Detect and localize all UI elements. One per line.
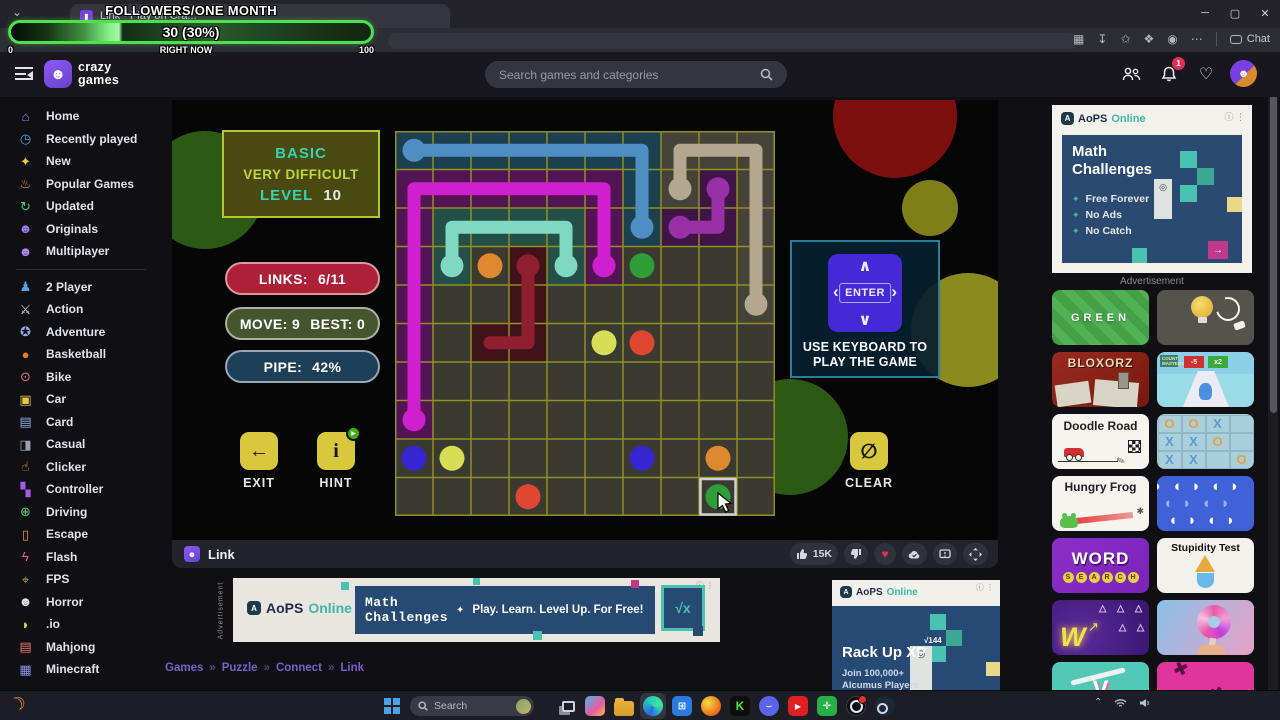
refresh-icon: ↻ — [17, 200, 34, 213]
advertisement-caption: Advertisement — [1052, 276, 1252, 287]
banner-ad[interactable]: ⓘ ⋮ A AoPS Online Math Challenges ✦ Play… — [233, 578, 720, 642]
sidebar-ad-art: Math Challenges ✦Free Forever ✦No Ads ✦N… — [1062, 135, 1242, 263]
sidebar-item-adventure[interactable]: ✪Adventure — [0, 321, 162, 344]
home-icon: ⌂ — [17, 110, 34, 123]
thumb-count-runner-art: COUNT MASTERS — [1160, 355, 1178, 367]
decor-circle-olive-small — [902, 180, 958, 236]
square-ad-formula: √144 — [924, 636, 942, 645]
sidebar-item-new[interactable]: ✦New — [0, 150, 162, 173]
thumb-word-search-art: A — [1089, 572, 1100, 583]
sidebar-item-io[interactable]: ◗.io — [0, 613, 162, 636]
card-icon: ▤ — [17, 415, 34, 428]
arrow-right-icon: › — [891, 282, 897, 302]
taskbar-search[interactable]: Search — [410, 696, 534, 716]
wifi-icon[interactable] — [1114, 698, 1127, 708]
chat-label: Chat — [1247, 33, 1270, 45]
pipe-counter: PIPE:42% — [225, 350, 380, 383]
thumb-count-runner-art: -5 — [1184, 356, 1204, 368]
sidebar-item-popular-games[interactable]: ♨Popular Games — [0, 173, 162, 196]
sidebar-item-label: Home — [46, 109, 79, 123]
ad-pixel-decor — [693, 626, 703, 636]
taskbar-slot-task-view — [553, 693, 579, 719]
search-placeholder: Search games and categories — [499, 68, 760, 82]
sidebar-item-label: Bike — [46, 370, 71, 384]
avatar[interactable]: ☻ — [1230, 60, 1257, 87]
followers-progress-value: 30 (30%) — [163, 24, 220, 40]
sidebar-item-label: FPS — [46, 572, 69, 586]
thumb-count-runner-art — [1199, 383, 1212, 400]
followers-progress-bar: 30 (30%) — [8, 20, 374, 44]
sidebar-item-label: Controller — [46, 482, 103, 496]
sidebar-item-clicker[interactable]: ☝Clicker — [0, 456, 162, 479]
thumb-donut-twist-art — [1197, 645, 1225, 655]
fullscreen-icon — [969, 548, 982, 561]
aops-logo-icon: A — [247, 601, 261, 615]
crazygames-logo[interactable]: ☻ — [44, 60, 72, 88]
sidebar-item-casual[interactable]: ◨Casual — [0, 433, 162, 456]
taskbar-slot-firefox — [698, 693, 724, 719]
thumb-bloxorz-art — [1118, 372, 1129, 389]
sidebar-item-label: New — [46, 154, 71, 168]
breadcrumb-separator: » — [264, 662, 270, 674]
breadcrumb: Games»Puzzle»Connect»Link — [165, 662, 364, 674]
thumb-hungry-frog-art: Hungry Frog — [1052, 480, 1149, 494]
sidebar-item-basketball[interactable]: ●Basketball — [0, 343, 162, 366]
sidebar-item-label: Escape — [46, 527, 88, 541]
taskbar-search-placeholder: Search — [434, 700, 510, 712]
level-label: LEVEL — [260, 187, 313, 204]
thumb-bloxorz[interactable]: BLOXORZ — [1052, 352, 1149, 407]
thumbs-down-icon — [850, 548, 862, 560]
search-icon — [418, 701, 428, 711]
breadcrumb-games[interactable]: Games — [165, 662, 203, 674]
thumb-word-search-art: S — [1063, 572, 1074, 583]
thumb-tic-tac-toe-art: O — [1206, 433, 1230, 451]
sidebar-item-label: Recently played — [46, 132, 137, 146]
banner-heading-1: Math — [365, 595, 448, 610]
thumbs-up-icon — [796, 548, 808, 560]
game-title: Link — [208, 547, 235, 562]
sidebar-item-minecraft[interactable]: ▦Minecraft — [0, 658, 162, 681]
taskbar-apps: ⊞K⌣▶✛ — [556, 696, 895, 716]
sidebar-item-escape[interactable]: ▯Escape — [0, 523, 162, 546]
more-options-icon[interactable]: ⋯ — [1191, 32, 1203, 46]
sidebar-item-flash[interactable]: ϟFlash — [0, 546, 162, 569]
thumb-bulb-plug-art — [1198, 317, 1207, 323]
sidebar-item-label: Popular Games — [46, 177, 134, 191]
breadcrumb-link[interactable]: Link — [340, 662, 364, 674]
favorites-button[interactable]: ♡ — [1193, 61, 1219, 87]
square-ad-art: √144 ◎ Rack Up XP Join 100,000+ Alcumus … — [832, 606, 1000, 690]
back-arrow-icon: ← — [249, 440, 269, 463]
ghost-icon: ☻ — [17, 222, 34, 235]
keyboard-hint-panel: ∧ ∨ ‹ › ENTER USE KEYBOARD TO PLAY THE G… — [790, 240, 940, 378]
move-counter: MOVE: 9BEST: 0 — [225, 307, 380, 340]
thumb-doodle-road-art — [1128, 440, 1141, 453]
sidebar-item-label: Basketball — [46, 347, 106, 361]
thumb-doodle-road[interactable]: Doodle Road✎ — [1052, 414, 1149, 469]
heart-icon: ♡ — [1199, 64, 1213, 84]
thumb-hungry-frog-art — [1060, 516, 1078, 528]
taskbar-slot-discord: ⌣ — [756, 693, 782, 719]
sidebar-item-mahjong[interactable]: ▤Mahjong — [0, 636, 162, 659]
chat-button[interactable]: Chat — [1230, 33, 1270, 45]
clock-icon: ◷ — [17, 132, 34, 145]
arrow-down-icon: ∨ — [859, 310, 872, 330]
taskbar-slot-sharex: ✛ — [814, 693, 840, 719]
thumb-stupidity-test-art — [1195, 555, 1215, 572]
sidebar-item-action[interactable]: ⚔Action — [0, 298, 162, 321]
fullscreen-button[interactable] — [963, 543, 988, 565]
sidebar-item-car[interactable]: ▣Car — [0, 388, 162, 411]
taskbar-slot-kick: K — [727, 693, 753, 719]
sidebar-item-label: Updated — [46, 199, 94, 213]
thumb-blue-shapes[interactable]: ◗ ◖ ◗ ◖ ◗◖ ◗ ◖ ◗◗ ◖ ◗ ◖ ◗ — [1157, 476, 1254, 531]
sidebar-item-home[interactable]: ⌂Home — [0, 105, 162, 128]
sidebar-item-label: .io — [46, 617, 60, 631]
square-ad[interactable]: ⓘ ⋮ A AoPS Online √144 ◎ Rack Up XP Join… — [832, 580, 1000, 690]
maximize-button[interactable]: ▢ — [1220, 0, 1250, 26]
steam-taskbar-icon[interactable] — [875, 696, 895, 716]
thumb-bulb-plug-art — [1191, 296, 1213, 318]
ad-pixel-decor — [533, 631, 542, 640]
sidebar-ad[interactable]: A AoPS Online ⓘ ⋮ Math Challenges ✦Free … — [1052, 105, 1252, 273]
banner-ad-band: Math Challenges ✦ Play. Learn. Level Up.… — [355, 586, 655, 634]
thumb-neon-wave-art: ▲ ▲ — [1117, 622, 1148, 634]
hidden-icons-chevron[interactable]: ⌃ — [1094, 697, 1102, 708]
ad-info-icon[interactable]: ⓘ ⋮ — [976, 582, 994, 593]
diamond-icon: ✦ — [456, 605, 464, 616]
ad-pixel-decor — [631, 580, 639, 588]
compass-icon: ✪ — [17, 325, 34, 338]
overlay-scale-min: 0 — [8, 45, 13, 55]
phone-link-taskbar-icon[interactable] — [585, 696, 605, 716]
minimize-button[interactable]: ─ — [1190, 0, 1220, 26]
hint-button[interactable]: i ▶ — [317, 432, 355, 470]
level-value: 10 — [323, 187, 342, 204]
thumb-tic-tac-toe-art: O — [1182, 415, 1206, 433]
sidebar-item-label: Mahjong — [46, 640, 95, 654]
overlay-scale-now: RIGHT NOW — [160, 45, 213, 55]
game-player-bar: ☻ Link 15K ♥ — [172, 540, 998, 568]
profile-icon[interactable]: ◉ — [1167, 32, 1177, 46]
edge-taskbar-icon[interactable] — [643, 696, 663, 716]
taskbar-slot-folder — [611, 693, 637, 719]
thumb-tic-tac-toe-art — [1230, 433, 1254, 451]
thumb-stupidity-test-art — [1197, 573, 1214, 588]
thumbnail-grid: GREENBLOXORZCOUNT MASTERS-5x2Doodle Road… — [1052, 290, 1254, 717]
sidebar-item-driving[interactable]: ⊕Driving — [0, 501, 162, 524]
thumb-doodle-road-art — [1058, 461, 1118, 462]
taskbar: ☽ Search ⊞K⌣▶✛ ⌃ — [0, 690, 1280, 720]
info-icon: i — [333, 440, 339, 463]
enter-key-label: ENTER — [839, 283, 891, 303]
sidebar-ad-heading-1: Math — [1072, 143, 1152, 161]
thumb-hungry-frog-art: ✱ — [1136, 506, 1144, 517]
sidebar-item-label: Flash — [46, 550, 77, 564]
tile-icon: ▤ — [17, 640, 34, 653]
crazygames-wordmark[interactable]: crazygames — [78, 61, 119, 87]
thumb-neon-wave-art: ↗ — [1088, 619, 1099, 635]
exit-button-label: EXIT — [229, 476, 289, 490]
banner-formula-box: √x — [661, 585, 705, 631]
thumb-count-runner[interactable]: COUNT MASTERS-5x2 — [1157, 352, 1254, 407]
sidebar-item-label: Originals — [46, 222, 98, 236]
thumb-tic-tac-toe-art: X — [1182, 451, 1206, 469]
friends-button[interactable] — [1118, 61, 1144, 87]
flame-icon: ♨ — [17, 177, 34, 190]
task-view-taskbar-icon[interactable] — [562, 701, 575, 712]
thumb-stupidity-test[interactable]: Stupidity Test — [1157, 538, 1254, 593]
thumb-tic-tac-toe-art: O — [1158, 415, 1182, 433]
sparkles-icon: ✦ — [17, 155, 34, 168]
sidebar-ad-pin: ◎ — [1154, 179, 1172, 219]
block-icon: ▦ — [17, 663, 34, 676]
thumb-green-art: GREEN — [1071, 312, 1130, 324]
thumb-blue-shapes-art: ◖ ◗ ◖ ◗ — [1163, 495, 1254, 512]
dislike-button[interactable] — [844, 543, 868, 565]
sidebar-item-label: Casual — [46, 437, 85, 451]
exit-button[interactable]: ← — [240, 432, 278, 470]
sidebar-item-label: Action — [46, 302, 83, 316]
favorite-button[interactable]: ♥ — [874, 543, 896, 565]
thumb-doodle-road-art: ✎ — [1115, 455, 1127, 468]
thumb-word-search-art: C — [1115, 572, 1126, 583]
taskbar-slot-steam — [872, 693, 898, 719]
ad-pixel-decor — [341, 582, 349, 590]
cloud-check-icon — [908, 549, 921, 560]
like-count: 15K — [813, 548, 832, 560]
sidebar-item-multiplayer[interactable]: ☻Multiplayer — [0, 240, 162, 263]
thumb-tic-tac-toe-art — [1230, 415, 1254, 433]
store-taskbar-icon[interactable]: ⊞ — [672, 696, 692, 716]
ghost-icon: ☻ — [17, 595, 34, 608]
thumb-blue-shapes-art: ◗ ◖ ◗ ◖ ◗ — [1157, 478, 1254, 495]
report-button[interactable] — [933, 543, 957, 565]
save-progress-button[interactable] — [902, 543, 927, 565]
thumb-bloxorz-art: BLOXORZ — [1052, 356, 1149, 370]
sidebar-item-label: Multiplayer — [46, 244, 109, 258]
clear-button[interactable]: ∅ — [850, 432, 888, 470]
thumb-word-search-art: R — [1102, 572, 1113, 583]
puzzle-grid[interactable] — [395, 131, 775, 516]
thumb-tic-tac-toe-art: X — [1206, 415, 1230, 433]
aops-logo-icon: A — [1061, 112, 1074, 125]
lightning-icon: ϟ — [17, 550, 34, 563]
thumb-tic-tac-toe-art — [1206, 451, 1230, 469]
banner-tagline: Play. Learn. Level Up. For Free! — [472, 604, 643, 616]
like-button[interactable]: 15K — [790, 543, 838, 565]
chat-bubble-icon — [1230, 35, 1242, 44]
report-icon — [939, 549, 951, 560]
search-highlight-image — [516, 699, 531, 714]
thumb-bulb-plug-art — [1233, 320, 1246, 330]
overlay-scale-max: 100 — [359, 45, 374, 55]
taskbar-slot-youtube: ▶ — [785, 693, 811, 719]
ad-arrow-tile: → — [1208, 241, 1228, 259]
door-icon: ▯ — [17, 528, 34, 541]
close-button[interactable]: ✕ — [1250, 0, 1280, 26]
taskbar-slot-store: ⊞ — [669, 693, 695, 719]
thumb-tic-tac-toe-art: O — [1230, 451, 1254, 469]
level-difficulty: VERY DIFFICULT — [243, 167, 359, 182]
sharex-taskbar-icon[interactable]: ✛ — [817, 696, 837, 716]
level-mode: BASIC — [275, 145, 327, 162]
heart-filled-icon: ♥ — [881, 547, 888, 561]
favorites-star-icon[interactable]: ✩ — [1120, 32, 1130, 46]
thumb-tic-tac-toe-art: X — [1158, 451, 1182, 469]
friends-icon — [1122, 67, 1141, 81]
sidebar-nav: ⌂Home◷Recently played✦New♨Popular Games↻… — [0, 97, 162, 690]
sidebar-item-recently-played[interactable]: ◷Recently played — [0, 128, 162, 151]
download-icon[interactable]: ↧ — [1097, 32, 1107, 46]
sidebar-item-originals[interactable]: ☻Originals — [0, 218, 162, 241]
ad-info-icon[interactable]: ⓘ ⋮ — [1224, 110, 1245, 123]
thumb-tic-tac-toe[interactable]: OOXXXOXXO — [1157, 414, 1254, 469]
crosshair-icon: ⌖ — [17, 573, 34, 586]
sidebar-item-label: Adventure — [46, 325, 105, 339]
keyboard-caption-line1: USE KEYBOARD TO — [803, 340, 927, 355]
keyboard-caption-line2: PLAY THE GAME — [803, 355, 927, 370]
thumb-doodle-road-art: Doodle Road — [1052, 419, 1149, 433]
thumb-neon-wave-art: ▲ ▲ ▲ — [1097, 603, 1146, 615]
breadcrumb-separator: » — [328, 662, 334, 674]
sidebar-item-label: 2 Player — [46, 280, 92, 294]
desktop: ⌄ ▮ Link · Play on Cra... ─ ▢ ✕ ▦ ↧ ✩ ❖ … — [0, 0, 1280, 720]
kick-taskbar-icon[interactable]: K — [730, 696, 750, 716]
thumb-tic-tac-toe-art: X — [1158, 433, 1182, 451]
thumb-neon-wave-art: W — [1060, 622, 1085, 653]
volume-icon[interactable] — [1139, 698, 1151, 708]
sidebar-item-label: Card — [46, 415, 73, 429]
thumb-word-search-art: H — [1128, 572, 1139, 583]
thumb-bloxorz-art — [1093, 379, 1139, 407]
stream-overlay: FOLLOWERS/ONE MONTH 30 (30%) 0 RIGHT NOW… — [8, 3, 374, 55]
basketball-icon: ● — [17, 348, 34, 361]
gamepad-icon: ▚ — [17, 483, 34, 496]
thumb-tic-tac-toe-art: X — [1182, 433, 1206, 451]
start-button[interactable] — [384, 698, 400, 714]
ad-pixel-decor — [473, 578, 480, 585]
thumb-count-runner-art: x2 — [1208, 356, 1228, 368]
car-icon: ▣ — [17, 393, 34, 406]
thumb-hungry-frog-art — [1076, 512, 1133, 524]
sidebar-item-label: Clicker — [46, 460, 86, 474]
bullet-icon: ✦ — [1072, 210, 1080, 221]
thumb-word-search[interactable]: WORDSEARCH — [1052, 538, 1149, 593]
breadcrumb-separator: » — [209, 662, 215, 674]
aops-logo-icon: A — [840, 586, 852, 598]
firefox-taskbar-icon[interactable] — [701, 696, 721, 716]
site-header: ☻ crazygames Search games and categories — [0, 52, 1280, 97]
sidebar-toggle-icon[interactable] — [15, 67, 33, 80]
hint-button-label: HINT — [306, 476, 366, 490]
firefox-corner-icon[interactable]: ☽ — [6, 692, 30, 718]
clear-button-label: CLEAR — [839, 476, 899, 490]
thumb-word-search-art: WORD — [1072, 549, 1130, 569]
toolbar-divider — [1216, 32, 1217, 46]
thumb-stupidity-test-art: Stupidity Test — [1157, 542, 1254, 554]
thumb-donut-twist[interactable] — [1157, 600, 1254, 655]
two-player-icon: ♟ — [17, 280, 34, 293]
scrollbar-thumb[interactable] — [1270, 95, 1277, 413]
youtube-taskbar-icon[interactable]: ▶ — [788, 696, 808, 716]
decor-circle-red — [833, 100, 957, 178]
extensions-icon[interactable]: ❖ — [1144, 32, 1155, 46]
pointer-icon: ☝ — [17, 460, 34, 473]
steering-wheel-icon: ⊕ — [17, 505, 34, 518]
taskbar-slot-edge — [640, 693, 666, 719]
sidebar-divider — [16, 269, 146, 270]
bullet-icon: ✦ — [1072, 194, 1080, 205]
thumb-tic-tac-toe-art: OOXXXOXXO — [1158, 415, 1254, 469]
game-canvas: BASIC VERY DIFFICULT LEVEL10 LINKS:6/11 … — [172, 100, 998, 540]
thumb-doodle-road-art — [1064, 448, 1084, 457]
sidebar-item-controller[interactable]: ▚Controller — [0, 478, 162, 501]
sidebar-item-2-player[interactable]: ♟2 Player — [0, 276, 162, 299]
thumb-bloxorz-art — [1055, 381, 1092, 407]
thumb-neon-wave[interactable]: W↗▲ ▲ ▲▲ ▲ — [1052, 600, 1149, 655]
sidebar-item-fps[interactable]: ⌖FPS — [0, 568, 162, 591]
sidebar-item-updated[interactable]: ↻Updated — [0, 195, 162, 218]
search-input[interactable]: Search games and categories — [485, 61, 787, 88]
address-bar[interactable] — [388, 33, 1078, 49]
overlay-title: FOLLOWERS/ONE MONTH — [8, 3, 374, 18]
crazygames-mini-logo: ☻ — [184, 546, 200, 562]
pacman-icon: ◗ — [17, 618, 34, 631]
thumb-hungry-frog[interactable]: Hungry Frog✱ — [1052, 476, 1149, 531]
sidebar-item-card[interactable]: ▤Card — [0, 411, 162, 434]
notifications-button[interactable]: 1 — [1156, 61, 1182, 87]
links-counter: LINKS:6/11 — [225, 262, 380, 295]
discord-taskbar-icon[interactable]: ⌣ — [759, 696, 779, 716]
sidebar-item-label: Horror — [46, 595, 83, 609]
thumb-word-search-art: SEARCH — [1063, 572, 1139, 583]
banner-ad-side-label: Advertisement — [214, 578, 228, 642]
thumb-green[interactable]: GREEN — [1052, 290, 1149, 345]
aops-brand: AoPS — [266, 600, 303, 616]
breadcrumb-puzzle[interactable]: Puzzle — [222, 662, 258, 674]
level-info-box: BASIC VERY DIFFICULT LEVEL10 — [222, 130, 380, 218]
taskbar-slot-obs — [843, 693, 869, 719]
arrow-up-icon: ∧ — [859, 256, 872, 276]
sidebar-item-label: Minecraft — [46, 662, 99, 676]
sidebar-ad-heading-2: Challenges — [1072, 161, 1152, 179]
apps-grid-icon[interactable]: ▦ — [1073, 32, 1084, 46]
sidebar-item-horror[interactable]: ☻Horror — [0, 591, 162, 614]
banner-heading-2: Challenges — [365, 610, 448, 625]
thumb-donut-twist-art — [1208, 616, 1220, 628]
hint-video-badge: ▶ — [346, 426, 361, 441]
people-icon: ☻ — [17, 245, 34, 258]
square-ad-heading: Rack Up XP — [842, 644, 926, 661]
clear-icon: ∅ — [860, 439, 877, 464]
thumb-word-search-art: E — [1076, 572, 1087, 583]
breadcrumb-connect[interactable]: Connect — [276, 662, 322, 674]
arrow-left-icon: ‹ — [833, 282, 839, 302]
taskbar-slot-phone-link — [582, 693, 608, 719]
sidebar-item-label: Driving — [46, 505, 87, 519]
sword-icon: ⚔ — [17, 303, 34, 316]
folder-taskbar-icon[interactable] — [614, 701, 634, 716]
bike-icon: ⊙ — [17, 370, 34, 383]
thumb-bulb-plug[interactable] — [1157, 290, 1254, 345]
joystick-icon: ◨ — [17, 438, 34, 451]
sidebar-item-bike[interactable]: ⊙Bike — [0, 366, 162, 389]
obs-taskbar-icon[interactable] — [846, 696, 866, 716]
system-tray: ⌃ — [1094, 697, 1151, 708]
search-icon — [760, 68, 773, 81]
